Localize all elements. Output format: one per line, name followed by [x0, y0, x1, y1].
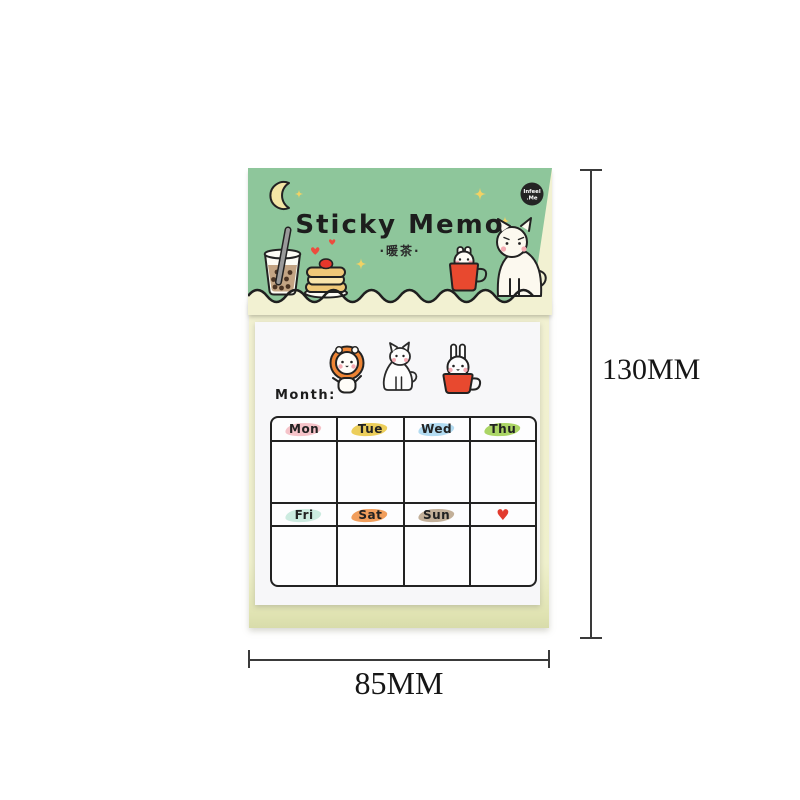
day-cell-fri: Fri — [272, 504, 336, 525]
calendar-empty-cell — [403, 442, 469, 502]
calendar-empty-cell — [403, 527, 469, 585]
day-label: Sun — [423, 508, 450, 522]
product-subtitle: ·暖茶· — [248, 242, 552, 259]
product-title: Sticky Memo — [248, 210, 552, 240]
height-dimension-line — [590, 170, 592, 638]
header-card: Infeel .Me — [248, 168, 552, 315]
memo-sheet: Month: Mon Tue Wed Thu Fri Sat Sun ♥ — [255, 322, 540, 605]
calendar-empty-cell — [272, 442, 336, 502]
day-cell-sun: Sun — [403, 504, 469, 525]
day-cell-thu: Thu — [469, 418, 535, 440]
day-cell-sat: Sat — [336, 504, 402, 525]
brand-badge: Infeel .Me — [521, 183, 544, 206]
day-label: Sat — [358, 508, 382, 522]
svg-text:Infeel: Infeel — [523, 189, 541, 195]
calendar-table: Mon Tue Wed Thu Fri Sat Sun ♥ — [270, 416, 537, 587]
height-dimension-cap-bottom — [580, 637, 602, 639]
heart-icon: ♥ — [496, 506, 509, 524]
calendar-body-row-1 — [272, 440, 535, 502]
day-label: Mon — [289, 422, 319, 436]
day-cell-heart: ♥ — [469, 504, 535, 525]
day-label: Thu — [489, 422, 516, 436]
day-cell-mon: Mon — [272, 418, 336, 440]
calendar-empty-cell — [336, 527, 402, 585]
calendar-header-row-1: Mon Tue Wed Thu — [272, 418, 535, 440]
svg-text:.Me: .Me — [526, 196, 537, 202]
month-label: Month: — [275, 388, 336, 403]
calendar-body-row-2 — [272, 525, 535, 585]
product-photo: Month: Mon Tue Wed Thu Fri Sat Sun ♥ — [0, 0, 800, 800]
width-dimension-line — [248, 659, 550, 661]
height-dimension-label: 130MM — [602, 353, 700, 387]
day-label: Wed — [421, 422, 452, 436]
day-cell-tue: Tue — [336, 418, 402, 440]
calendar-empty-cell — [272, 527, 336, 585]
calendar-empty-cell — [469, 527, 535, 585]
calendar-empty-cell — [336, 442, 402, 502]
calendar-header-row-2: Fri Sat Sun ♥ — [272, 502, 535, 525]
height-dimension-cap-top — [580, 169, 602, 171]
calendar-empty-cell — [469, 442, 535, 502]
day-label: Fri — [295, 508, 314, 522]
cat-icon — [384, 343, 417, 391]
lion-cub-icon — [331, 347, 364, 393]
day-label: Tue — [358, 422, 383, 436]
rabbit-in-mug-icon — [443, 345, 480, 394]
width-dimension-label: 85MM — [248, 665, 550, 702]
day-cell-wed: Wed — [403, 418, 469, 440]
